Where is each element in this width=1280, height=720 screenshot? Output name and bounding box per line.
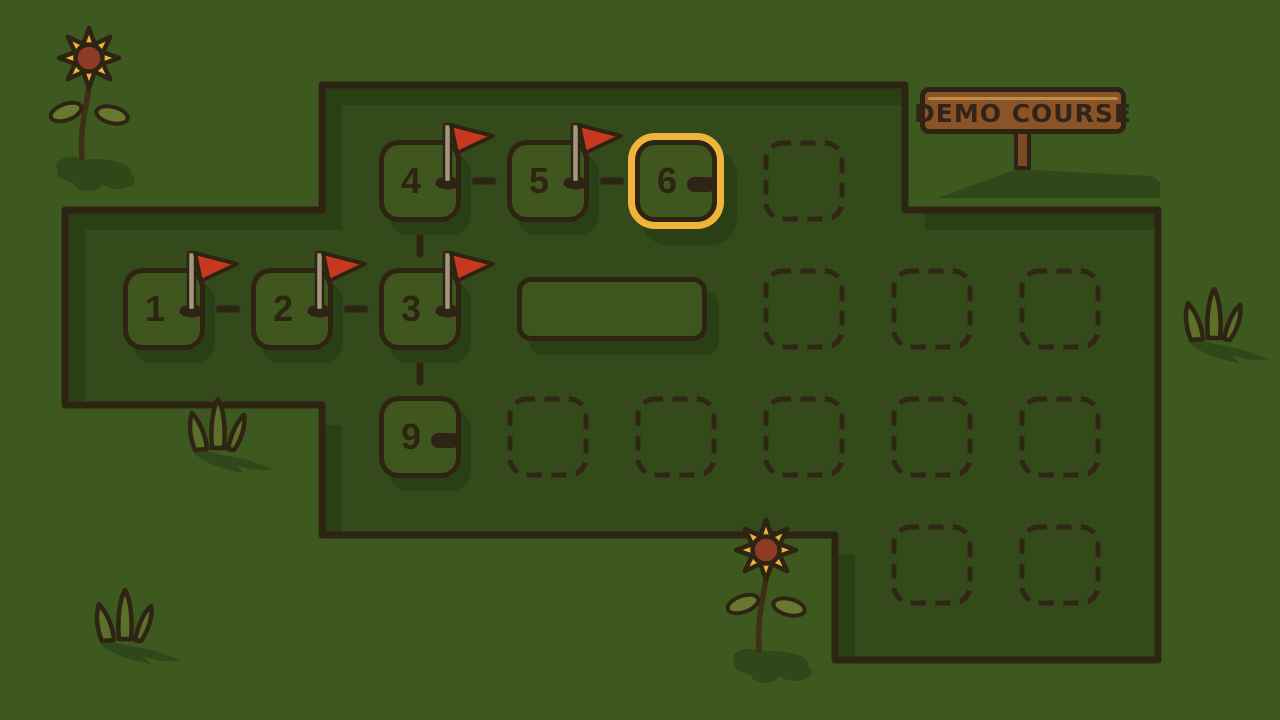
locked-level-slot xyxy=(891,524,973,606)
locked-level-slot xyxy=(1019,268,1101,350)
locked-level-slot xyxy=(763,268,845,350)
level-4-tile[interactable]: 4 xyxy=(379,140,461,222)
locked-level-slot xyxy=(635,396,717,478)
level-2-tile[interactable]: 2 xyxy=(251,268,333,350)
no-score-dash xyxy=(431,433,460,448)
course-sign: DEMO COURSE xyxy=(920,87,1126,134)
locked-level-slot xyxy=(763,396,845,478)
level-number-label: 3 xyxy=(390,273,432,345)
level-1-tile[interactable]: 1 xyxy=(123,268,205,350)
level-number-label: 1 xyxy=(134,273,176,345)
locked-level-slot xyxy=(507,396,589,478)
sign-highlight-line xyxy=(928,97,1118,100)
wide-blank-tile xyxy=(517,277,707,341)
level-number-label: 9 xyxy=(390,401,432,473)
level-number-label: 2 xyxy=(262,273,304,345)
level-number-label: 5 xyxy=(518,145,560,217)
locked-level-slot xyxy=(763,140,845,222)
locked-level-slot xyxy=(1019,524,1101,606)
level-9-tile[interactable]: 9 xyxy=(379,396,461,478)
locked-level-slot xyxy=(1019,396,1101,478)
sign-post xyxy=(1014,128,1031,170)
level-number-label: 6 xyxy=(646,145,688,217)
game-screen: 1234569 DEMO COURSE xyxy=(0,0,1280,720)
level-5-tile[interactable]: 5 xyxy=(507,140,589,222)
course-sign-label: DEMO COURSE xyxy=(914,99,1132,128)
level-number-label: 4 xyxy=(390,145,432,217)
no-score-dash xyxy=(687,177,716,192)
level-3-tile[interactable]: 3 xyxy=(379,268,461,350)
locked-level-slot xyxy=(891,396,973,478)
locked-level-slot xyxy=(891,268,973,350)
level-6-tile[interactable]: 6 xyxy=(635,140,717,222)
